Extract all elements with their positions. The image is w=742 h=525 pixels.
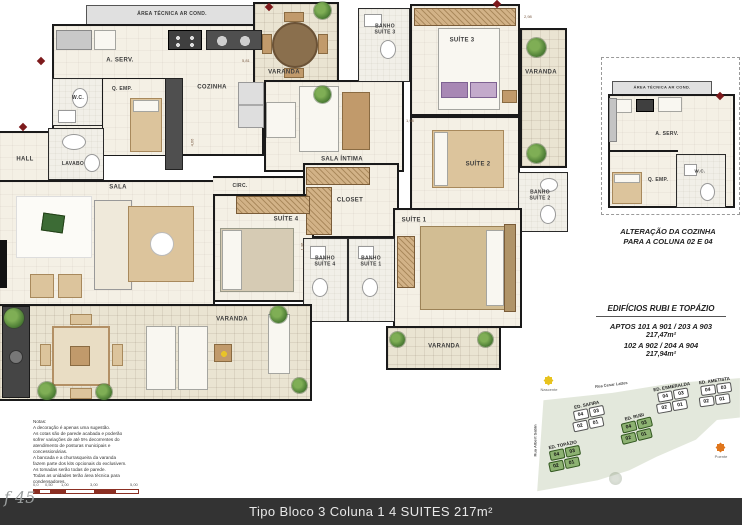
scale-tick: 0,0: [33, 482, 39, 487]
pillow: [133, 100, 159, 112]
unit-chip: 02: [620, 432, 637, 445]
chair: [40, 344, 51, 366]
page-ref: f 45: [4, 488, 35, 507]
lounge-chair: [268, 314, 290, 374]
label-suite4: SUÍTE 4: [274, 217, 299, 224]
label-circ: CIRC.: [232, 184, 247, 190]
info-divider: [596, 316, 726, 317]
label-banho-suite1: BANHO SUÍTE 1: [361, 256, 382, 268]
chair: [70, 388, 92, 399]
footer-title: Tipo Bloco 3 Coluna 1 4 SUITES 217m²: [249, 504, 493, 519]
pillow: [434, 132, 448, 186]
unit-chip: 02: [572, 420, 589, 433]
scale-tick: 5,00: [130, 482, 138, 487]
detail-wall: [608, 150, 678, 152]
scale-tick: 0,50: [45, 482, 53, 487]
label-suite1: SUÍTE 1: [402, 218, 427, 225]
wardrobe: [414, 8, 516, 26]
table-centerpiece: [150, 232, 174, 256]
floorplan-page: ÁREA TÉCNICA AR COND. A. SERV. COZINHA W…: [0, 0, 742, 525]
label-varanda-right: VARANDA: [525, 70, 557, 77]
sun-west-icon: [717, 444, 724, 451]
chair: [284, 12, 304, 22]
unit-chip: 02: [698, 395, 714, 407]
detail-label-a-serv: A. SERV.: [655, 132, 678, 138]
plant-icon: [527, 38, 546, 57]
sun-west-label: Poente: [715, 454, 728, 459]
info-aptos-line2: 102 A 902 / 204 A 904: [624, 341, 698, 350]
plant-icon: [478, 332, 493, 347]
armchair: [30, 274, 54, 298]
plant-icon: [527, 144, 546, 163]
marker-diamond-icon: [37, 57, 45, 65]
marker-diamond-icon: [19, 123, 27, 131]
detail-caption-line2: PARA A COLUNA 02 E 04: [623, 237, 712, 246]
unit-chip: 01: [635, 428, 652, 441]
unit-chip: 02: [656, 402, 673, 414]
grill-sink: [9, 350, 23, 364]
wardrobe: [236, 196, 310, 214]
site-building-ed-ametista: ED. AMETISTA04030201: [698, 376, 733, 407]
dim-label: 1,98: [406, 118, 414, 123]
label-sala-intima: SALA ÍNTIMA: [321, 157, 363, 164]
cushion: [41, 213, 65, 234]
counter-icon: [609, 98, 617, 142]
scale-bar: [33, 489, 139, 494]
notes-text: Notas: A decoração é apenas uma sugestão…: [33, 419, 145, 485]
label-closet: CLOSET: [337, 198, 363, 205]
street-label-left: Rua Albert Sabin: [533, 424, 538, 456]
stove-icon: [636, 99, 654, 112]
label-varanda-top: VARANDA: [268, 70, 300, 77]
site-building-ed-rubi: ED. RUBI04030201: [618, 411, 656, 445]
desk: [342, 92, 370, 150]
scale-tick: 3,00: [90, 482, 98, 487]
info-aptos-line1: APTOS 101 A 901 / 203 A 903: [610, 322, 712, 331]
terrace-table-top: [70, 346, 90, 366]
dim-label: 2,98: [524, 14, 532, 19]
pillow: [222, 230, 242, 290]
detail-label-area-tecnica: ÁREA TÉCNICA AR COND.: [634, 86, 691, 91]
detail-room-wc: [676, 154, 726, 208]
info-area-line2: 217,94m²: [646, 351, 676, 358]
toilet-icon: [700, 183, 715, 201]
pillow: [470, 82, 497, 98]
footer-bar: Tipo Bloco 3 Coluna 1 4 SUITES 217m²: [0, 498, 742, 525]
site-buildings-layer: ED. SAFIRA04030201ED. ESMERALDA04030201E…: [533, 372, 742, 495]
label-cozinha: COZINHA: [197, 85, 226, 92]
closet-shelves: [306, 167, 370, 185]
label-hall: HALL: [16, 157, 33, 164]
unit-chip: 01: [587, 416, 604, 429]
armchair: [266, 102, 296, 138]
stove-icon: [168, 30, 202, 50]
label-suite3: SUÍTE 3: [450, 38, 475, 45]
washer-icon: [616, 99, 632, 113]
side-table: [214, 344, 232, 362]
info-area-line1: 217,47m²: [646, 332, 676, 339]
label-banho-suite3: BANHO SUÍTE 3: [375, 24, 396, 36]
round-table: [272, 22, 318, 68]
detail-label-q-emp: Q. EMP.: [648, 178, 668, 184]
label-banho-suite2: BANHO SUÍTE 2: [530, 190, 551, 202]
lounge-bed: [146, 326, 176, 390]
toilet-icon: [540, 205, 556, 224]
sun-east-label: Nascente: [541, 387, 558, 392]
unit-chip: 01: [672, 399, 689, 411]
plant-icon: [390, 332, 405, 347]
site-map: Rua Cesar Lattes Rua Albert Sabin Nascen…: [533, 372, 742, 495]
label-a-serv: A. SERV.: [106, 58, 133, 65]
fridge-icon: [238, 82, 264, 128]
toilet-icon: [362, 278, 378, 297]
dim-label: 1,36: [299, 243, 304, 251]
chair: [262, 34, 272, 54]
plant-icon: [4, 308, 24, 328]
sink-icon: [58, 110, 76, 123]
lounge-bed: [178, 326, 208, 390]
armchair: [58, 274, 82, 298]
label-varanda-terrace: VARANDA: [216, 317, 248, 324]
dim-label: 4,66: [189, 139, 194, 147]
kitchen-counter-icon: [165, 78, 183, 170]
lavabo-sink-icon: [62, 134, 86, 150]
plant-icon: [38, 382, 56, 400]
sofa: [94, 200, 132, 290]
detail-caption-line1: ALTERAÇÃO DA COZINHA: [620, 227, 715, 236]
chair: [318, 34, 328, 54]
unit-chip: 01: [563, 456, 580, 469]
unit-chip: 02: [548, 460, 565, 473]
nightstand: [502, 90, 517, 103]
label-banho-suite4: BANHO SUÍTE 4: [315, 256, 336, 268]
lavabo-toilet-icon: [84, 154, 100, 172]
plant-icon: [314, 86, 331, 103]
label-sala: SALA: [109, 185, 127, 192]
site-building-ed-top-zio: ED. TOPÁZIO04030201: [547, 439, 584, 472]
pillow: [614, 174, 640, 183]
chair: [70, 314, 92, 325]
sink-counter-icon: [206, 30, 262, 50]
label-q-emp: Q. EMP.: [112, 87, 132, 93]
tv-panel: [0, 240, 7, 288]
info-title: EDIFÍCIOS RUBI E TOPÁZIO: [608, 304, 715, 313]
unit-chip: 01: [714, 393, 730, 405]
counter-icon: [56, 30, 92, 50]
label-varanda-bottom: VARANDA: [428, 344, 460, 351]
pillow: [486, 230, 504, 306]
label-suite2: SUÍTE 2: [466, 162, 491, 169]
washer-icon: [94, 30, 116, 50]
sun-east-icon: [545, 377, 552, 384]
label-lavabo: LAVABO: [62, 162, 84, 168]
label-wc: W.C.: [72, 96, 84, 102]
label-area-tecnica: ÁREA TÉCNICA AR COND.: [137, 12, 207, 18]
headboard: [504, 224, 516, 312]
plant-icon: [292, 378, 307, 393]
pillow: [441, 82, 468, 98]
toilet-icon: [312, 278, 328, 297]
plant-icon: [270, 306, 287, 323]
scale-tick: 1,00: [61, 482, 69, 487]
dim-label: 5,81: [242, 58, 250, 63]
site-building-ed-esmeralda: ED. ESMERALDA04030201: [653, 381, 694, 414]
chair: [112, 344, 123, 366]
toilet-icon: [380, 40, 396, 59]
plant-icon: [96, 384, 112, 400]
shelves: [397, 236, 415, 288]
cabinet: [658, 97, 682, 112]
detail-label-wc: W.C.: [695, 168, 706, 173]
plant-icon: [314, 2, 331, 19]
site-building-ed-safira: ED. SAFIRA04030201: [571, 399, 608, 432]
